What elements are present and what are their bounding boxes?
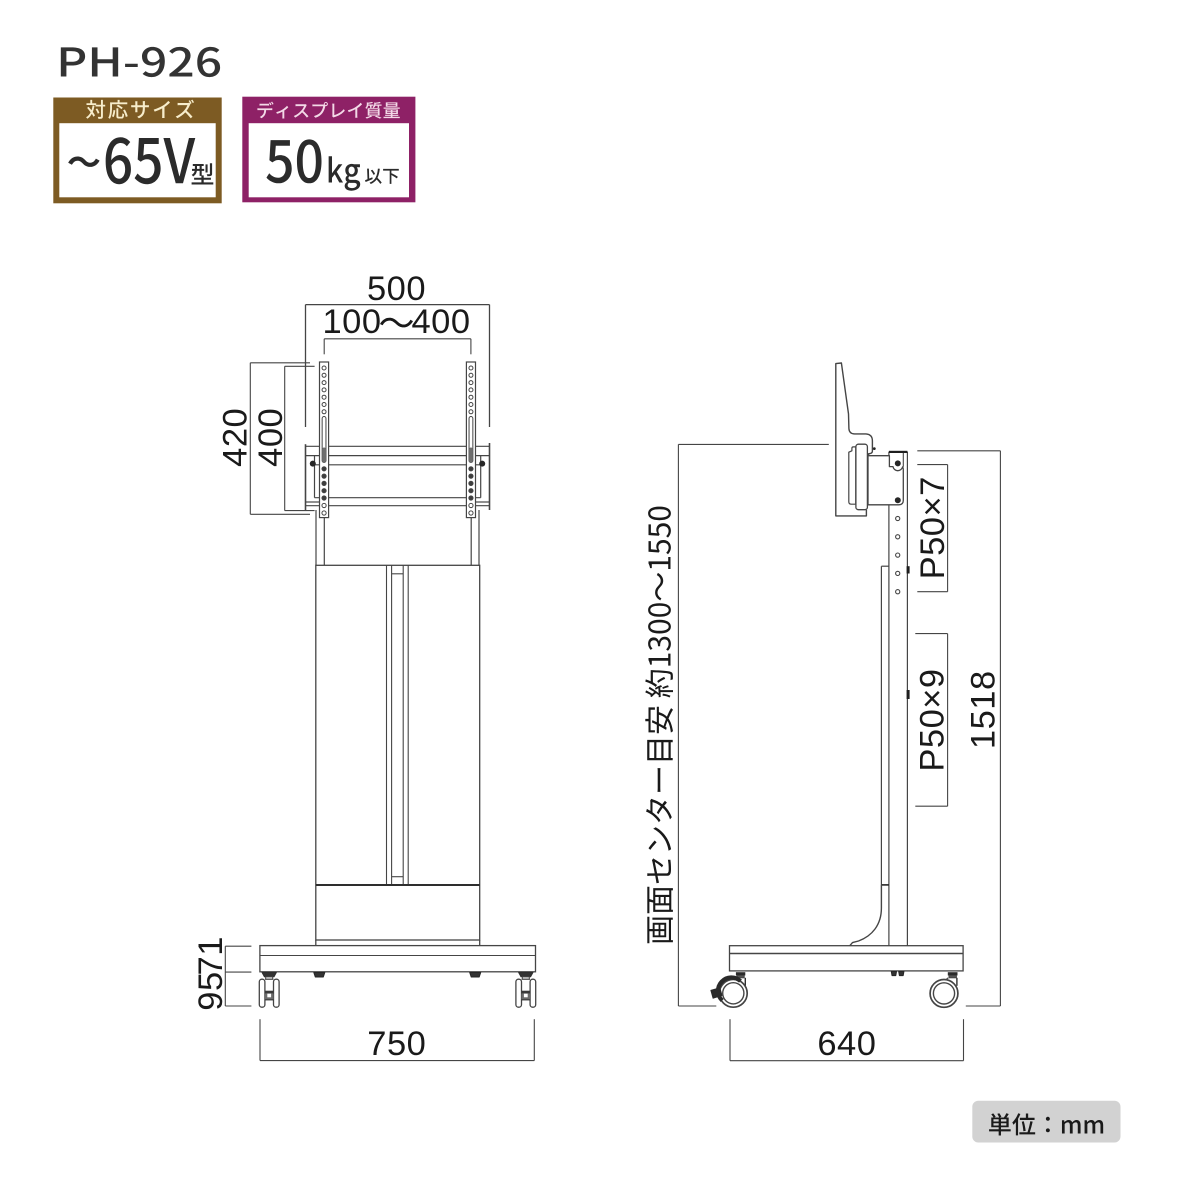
svg-text:400: 400 xyxy=(252,408,290,467)
svg-text:420: 420 xyxy=(216,408,254,467)
svg-text:100: 100 xyxy=(322,303,381,341)
svg-text:P50×7: P50×7 xyxy=(914,476,952,579)
svg-text:P50×9: P50×9 xyxy=(914,668,952,771)
svg-text:640: 640 xyxy=(817,1025,876,1063)
svg-text:71: 71 xyxy=(192,936,230,975)
svg-text:1518: 1518 xyxy=(964,670,1002,749)
svg-text:400: 400 xyxy=(411,303,470,341)
svg-text:95: 95 xyxy=(192,971,230,1010)
svg-text:750: 750 xyxy=(367,1025,426,1063)
